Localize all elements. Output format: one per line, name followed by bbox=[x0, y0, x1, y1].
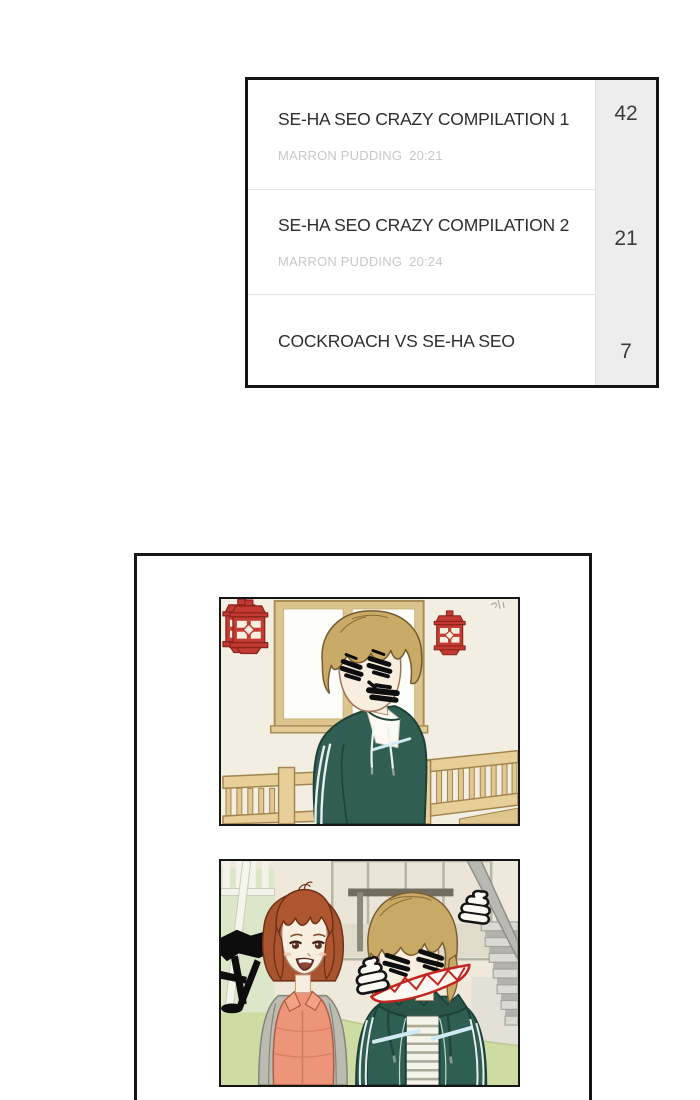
page: { "episode_list": { "items": [ {"title":… bbox=[0, 0, 700, 1100]
episode-count: 21 bbox=[596, 227, 656, 251]
comic-panel-2 bbox=[219, 859, 520, 1087]
episode-row-2[interactable]: SE-HA SEO CRAZY COMPILATION 2 MARRON PUD… bbox=[248, 190, 596, 295]
panel-2-art bbox=[221, 861, 518, 1085]
comic-panel-1 bbox=[219, 597, 520, 826]
episode-meta: MARRON PUDDING20:24 bbox=[278, 254, 596, 269]
comic-page-container bbox=[134, 553, 592, 1100]
lantern-icon bbox=[434, 611, 465, 655]
episode-title: SE-HA SEO CRAZY COMPILATION 2 bbox=[278, 190, 596, 236]
episode-title: SE-HA SEO CRAZY COMPILATION 1 bbox=[278, 80, 596, 130]
episode-row-3[interactable]: COCKROACH VS SE-HA SEO bbox=[248, 295, 596, 382]
lantern-icon bbox=[230, 600, 268, 654]
episode-rows: SE-HA SEO CRAZY COMPILATION 1 MARRON PUD… bbox=[248, 80, 596, 385]
view-count-column: 42 21 7 bbox=[595, 80, 656, 385]
episode-time: 20:24 bbox=[409, 254, 443, 269]
episode-count: 7 bbox=[596, 340, 656, 364]
episode-author: MARRON PUDDING bbox=[278, 148, 402, 163]
episode-time: 20:21 bbox=[409, 148, 443, 163]
panel-1-art bbox=[221, 599, 518, 824]
episode-meta: MARRON PUDDING20:21 bbox=[278, 148, 596, 163]
episode-title: COCKROACH VS SE-HA SEO bbox=[278, 295, 596, 352]
episode-row-1[interactable]: SE-HA SEO CRAZY COMPILATION 1 MARRON PUD… bbox=[248, 80, 596, 190]
episode-author: MARRON PUDDING bbox=[278, 254, 402, 269]
episode-count: 42 bbox=[596, 102, 656, 126]
episode-list-card: 42 21 7 SE-HA SEO CRAZY COMPILATION 1 MA… bbox=[245, 77, 659, 388]
